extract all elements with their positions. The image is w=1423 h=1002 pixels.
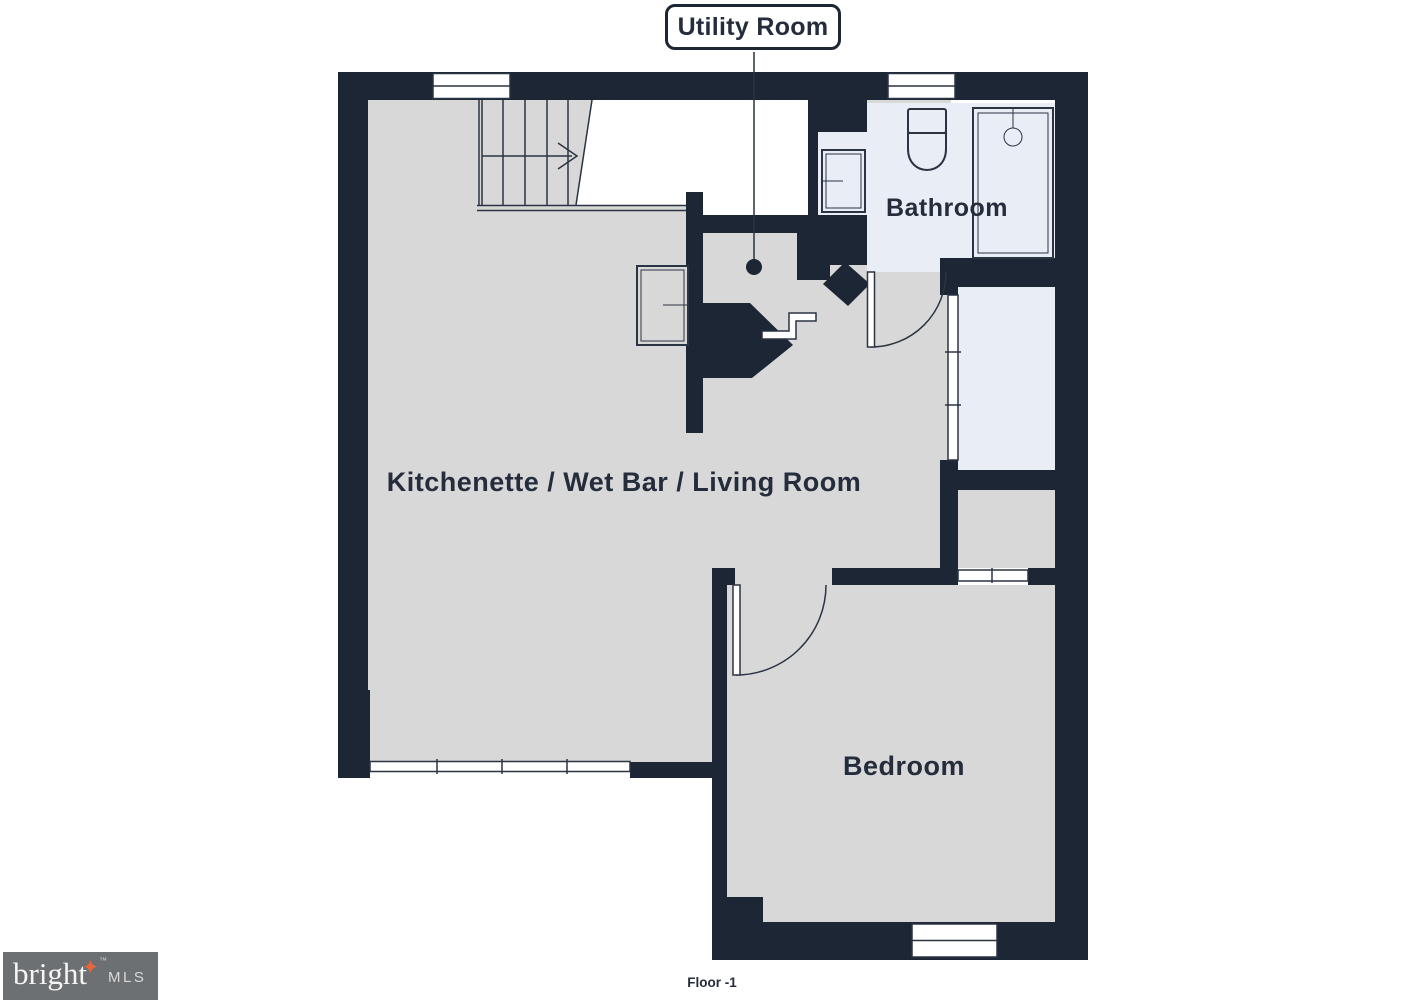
toilet-fixture [908,109,946,170]
closet-bottom-wall [940,470,1058,490]
water-heater-fixture [637,266,688,345]
bedroom-door-leaf [733,585,740,675]
vestibule-window [958,570,1028,581]
right-wall [1055,72,1088,960]
bottom-wall-segment [630,762,712,778]
left-wall [338,72,368,778]
bedroom-bottom-wall [712,922,1088,960]
bathroom-bottom-wall [940,258,1058,287]
logo-text-mls: MLS [108,969,146,986]
vestibule-floor [958,490,1055,568]
closet-floor [958,287,1055,470]
floorplan-svg [0,0,1423,1002]
shower-fixture [973,108,1053,258]
utility-room-callout: Utility Room [665,4,841,50]
living-room-label: Kitchenette / Wet Bar / Living Room [374,467,874,498]
logo-text-bright: bright [13,956,87,992]
vestibule-left-wall [940,490,958,585]
utility-top-wall [686,215,816,233]
bedroom-label: Bedroom [804,751,1004,782]
logo-trademark: ™ [99,956,107,965]
bathroom-label: Bathroom [847,194,1047,223]
sliding-window [370,762,630,772]
bedroom-top-wall [832,568,958,585]
logo-star-icon: ✦ [82,955,99,980]
closet-sliding-door [948,295,958,460]
bathroom-door-leaf [868,272,875,347]
bottom-left-corner-wall [338,690,370,778]
callout-leader-dot [746,259,762,275]
floorplan-page: Utility Room Bathroom Kitchenette / Wet … [0,0,1423,1002]
floor-number-label: Floor -1 [612,975,812,990]
brightmls-logo: bright ✦ ™ MLS [3,952,158,1000]
